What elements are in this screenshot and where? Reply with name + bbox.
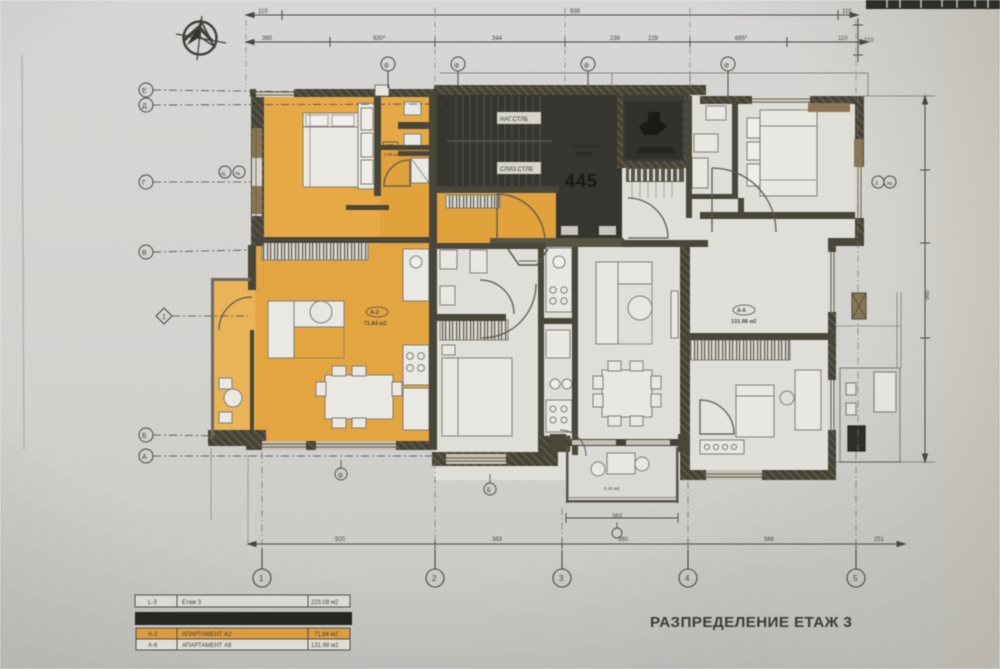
svg-text:А-6: А-6 [737, 308, 746, 314]
svg-text:ф: ф [384, 63, 389, 69]
svg-text:СЛИЗ.СТЛБ: СЛИЗ.СТЛБ [500, 167, 533, 173]
svg-text:4.05: 4.05 [384, 144, 394, 150]
svg-text:5: 5 [853, 574, 858, 583]
svg-text:131.98 м2: 131.98 м2 [731, 319, 756, 325]
svg-text:3: 3 [875, 181, 878, 187]
svg-text:3.96 м2: 3.96 м2 [384, 152, 400, 157]
svg-text:110: 110 [838, 36, 848, 42]
svg-text:№: № [235, 171, 240, 177]
svg-text:360: 360 [262, 36, 273, 42]
svg-text:3: 3 [559, 574, 564, 583]
svg-text:110: 110 [258, 9, 268, 15]
svg-text:L-3: L-3 [148, 600, 157, 606]
svg-text:ф: ф [454, 63, 459, 69]
svg-text:РАЗПРЕДЕЛЕНИЕ ЕТАЖ 3: РАЗПРЕДЕЛЕНИЕ ЕТАЖ 3 [650, 614, 852, 631]
svg-text:110: 110 [864, 38, 874, 44]
svg-text:4: 4 [685, 574, 690, 583]
svg-text:960: 960 [925, 289, 931, 300]
svg-text:363: 363 [612, 514, 623, 520]
svg-text:6.46 м2: 6.46 м2 [604, 486, 620, 491]
svg-text:ф: ф [584, 63, 589, 69]
svg-text:Е: Е [142, 88, 147, 95]
svg-text:А-2: А-2 [148, 632, 158, 638]
svg-text:Етаж 3: Етаж 3 [182, 600, 202, 606]
svg-text:251: 251 [874, 537, 885, 543]
svg-text:НАГ.СТЛБ: НАГ.СТЛБ [500, 117, 528, 123]
svg-text:566: 566 [764, 537, 775, 543]
svg-text:щ: щ [221, 171, 225, 177]
svg-text:228: 228 [648, 36, 659, 42]
svg-text:Б: Б [142, 433, 147, 440]
svg-text:360: 360 [618, 537, 629, 543]
svg-text:71.84 м2: 71.84 м2 [364, 321, 386, 327]
svg-text:665*: 665* [735, 36, 748, 42]
svg-text:71.84 м2: 71.84 м2 [314, 632, 339, 638]
svg-text:ф: ф [724, 63, 729, 69]
svg-text:445: 445 [565, 171, 598, 191]
svg-text:№: № [887, 181, 892, 187]
svg-text:920*: 920* [373, 36, 386, 42]
svg-text:1: 1 [162, 314, 166, 321]
svg-text:ЛИФТ: ЛИФТ [576, 151, 594, 158]
svg-text:2: 2 [432, 574, 437, 583]
svg-text:920: 920 [335, 537, 346, 543]
svg-text:пътнически: пътнически [572, 144, 599, 150]
svg-text:В: В [142, 250, 147, 257]
svg-text:Б: Б [487, 488, 491, 494]
svg-text:363: 363 [492, 537, 503, 543]
svg-text:АПАРТАМЕНТ А6: АПАРТАМЕНТ А6 [182, 643, 232, 649]
svg-text:ф: ф [338, 473, 343, 479]
svg-text:Д: Д [142, 103, 147, 110]
svg-text:А-2: А-2 [370, 310, 379, 316]
svg-text:А-6: А-6 [148, 643, 158, 649]
svg-text:223.08 м2: 223.08 м2 [311, 600, 339, 606]
svg-text:110: 110 [842, 9, 852, 15]
svg-text:131.98 м2: 131.98 м2 [311, 643, 339, 649]
svg-text:936: 936 [570, 9, 581, 15]
svg-text:236: 236 [610, 36, 621, 42]
svg-text:344: 344 [492, 36, 503, 42]
svg-text:АПАРТАМЕНТ А2: АПАРТАМЕНТ А2 [182, 632, 232, 638]
svg-text:1: 1 [259, 574, 264, 583]
svg-text:Г: Г [142, 180, 146, 187]
svg-text:А: А [142, 454, 147, 461]
